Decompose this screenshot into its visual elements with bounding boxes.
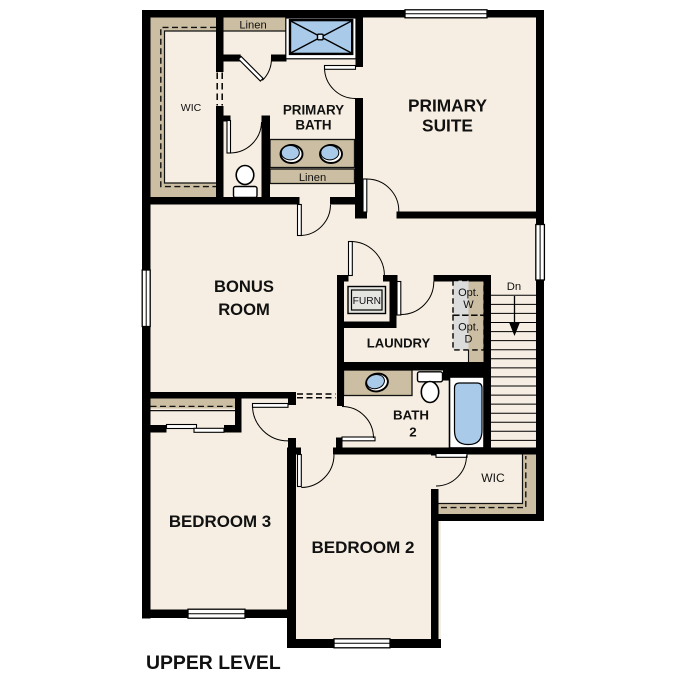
svg-text:WIC: WIC [181,102,202,114]
svg-text:Dn: Dn [507,281,521,293]
svg-text:SUITE: SUITE [422,115,473,135]
svg-text:BONUS: BONUS [214,277,274,296]
svg-text:PRIMARY: PRIMARY [283,102,344,117]
svg-text:D: D [465,334,473,346]
svg-text:BEDROOM 2: BEDROOM 2 [312,538,415,557]
svg-text:Opt.: Opt. [458,287,479,299]
svg-text:BEDROOM 3: BEDROOM 3 [169,512,271,531]
svg-text:PRIMARY: PRIMARY [408,95,488,115]
svg-text:Linen: Linen [299,172,326,184]
svg-text:UPPER LEVEL: UPPER LEVEL [146,652,281,674]
svg-text:ROOM: ROOM [218,300,270,319]
svg-text:BATH: BATH [393,408,429,423]
svg-text:FURN: FURN [353,296,381,307]
svg-text:2: 2 [409,425,416,440]
svg-text:BATH: BATH [295,118,331,133]
svg-text:LAUNDRY: LAUNDRY [367,336,431,351]
svg-text:W: W [463,299,474,311]
svg-text:Opt.: Opt. [458,322,479,334]
svg-text:Linen: Linen [239,19,266,31]
svg-text:WIC: WIC [481,471,505,485]
